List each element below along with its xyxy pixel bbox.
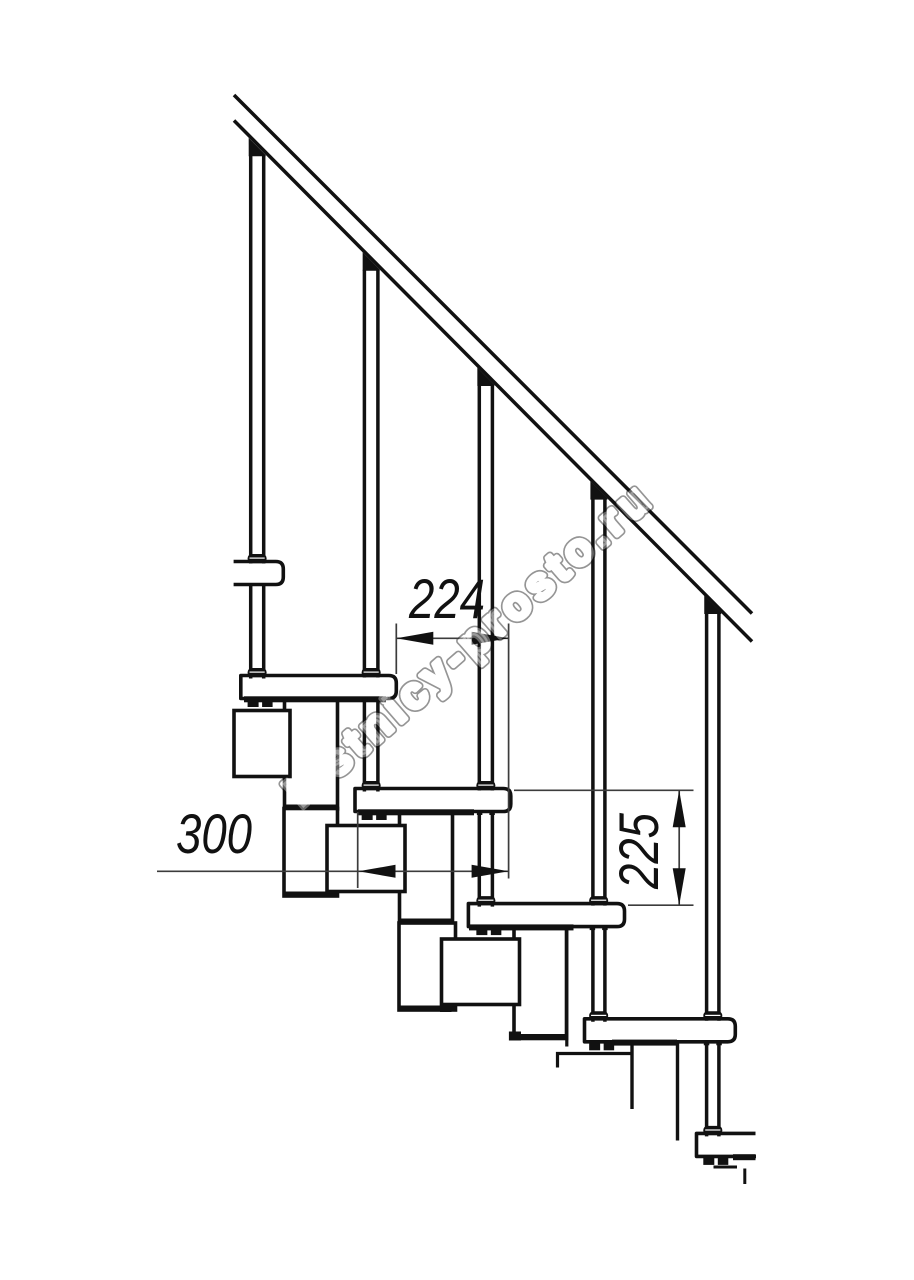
svg-text:300: 300 [176,802,252,865]
svg-text:225: 225 [607,812,670,890]
